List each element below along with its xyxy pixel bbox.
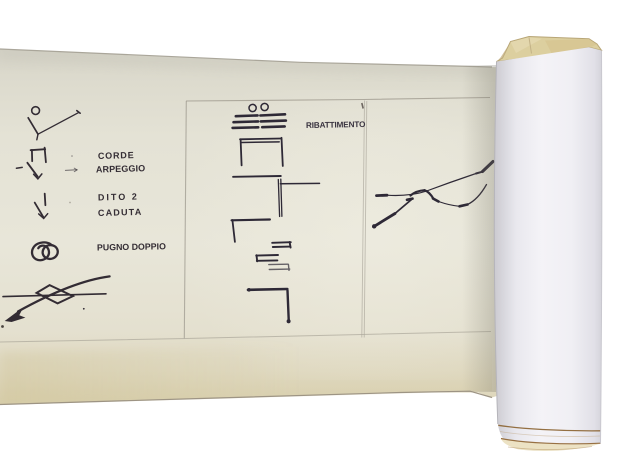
svg-text:ARPEGGIO: ARPEGGIO	[96, 163, 146, 174]
svg-text:PUGNO DOPPIO: PUGNO DOPPIO	[97, 241, 166, 252]
svg-text:RIBATTIMENTO: RIBATTIMENTO	[306, 120, 366, 130]
svg-text:DITO 2: DITO 2	[98, 191, 139, 202]
svg-text:CORDE: CORDE	[98, 150, 135, 161]
svg-text:CADUTA: CADUTA	[98, 207, 143, 218]
